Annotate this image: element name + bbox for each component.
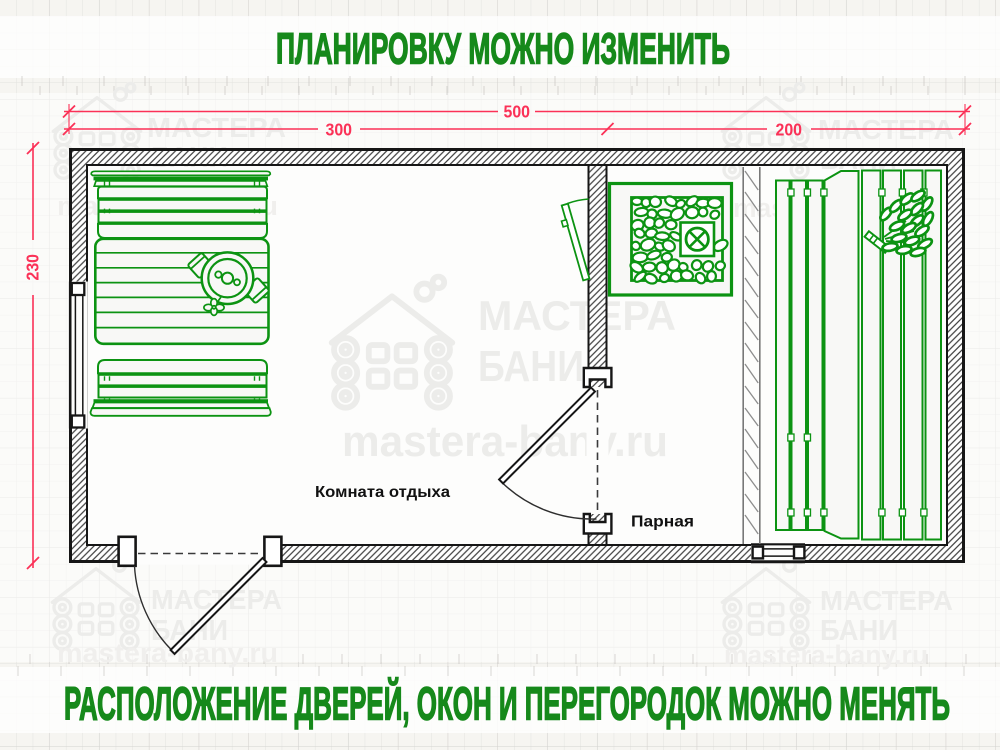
svg-text:МАСТЕРА: МАСТЕРА xyxy=(147,112,286,143)
svg-text:300: 300 xyxy=(326,120,353,140)
svg-text:МАСТЕРА: МАСТЕРА xyxy=(478,292,676,339)
svg-text:БАНИ: БАНИ xyxy=(478,342,584,391)
svg-text:mastera-bany.ru: mastera-bany.ru xyxy=(57,638,278,668)
svg-text:МАСТЕРА: МАСТЕРА xyxy=(820,585,953,616)
svg-text:mastera-bany.ru: mastera-bany.ru xyxy=(724,640,928,670)
svg-text:Комната отдыха: Комната отдыха xyxy=(315,484,450,501)
svg-text:200: 200 xyxy=(776,120,803,140)
svg-text:230: 230 xyxy=(23,254,43,281)
svg-text:РАСПОЛОЖЕНИЕ ДВЕРЕЙ, ОКОН И ПЕ: РАСПОЛОЖЕНИЕ ДВЕРЕЙ, ОКОН И ПЕРЕГОРОДОК … xyxy=(64,678,950,730)
svg-text:500: 500 xyxy=(504,102,531,122)
svg-text:Парная: Парная xyxy=(631,514,694,531)
svg-text:mastera-bany.ru: mastera-bany.ru xyxy=(342,417,668,466)
svg-text:ПЛАНИРОВКУ МОЖНО ИЗМЕНИТЬ: ПЛАНИРОВКУ МОЖНО ИЗМЕНИТЬ xyxy=(276,25,730,74)
